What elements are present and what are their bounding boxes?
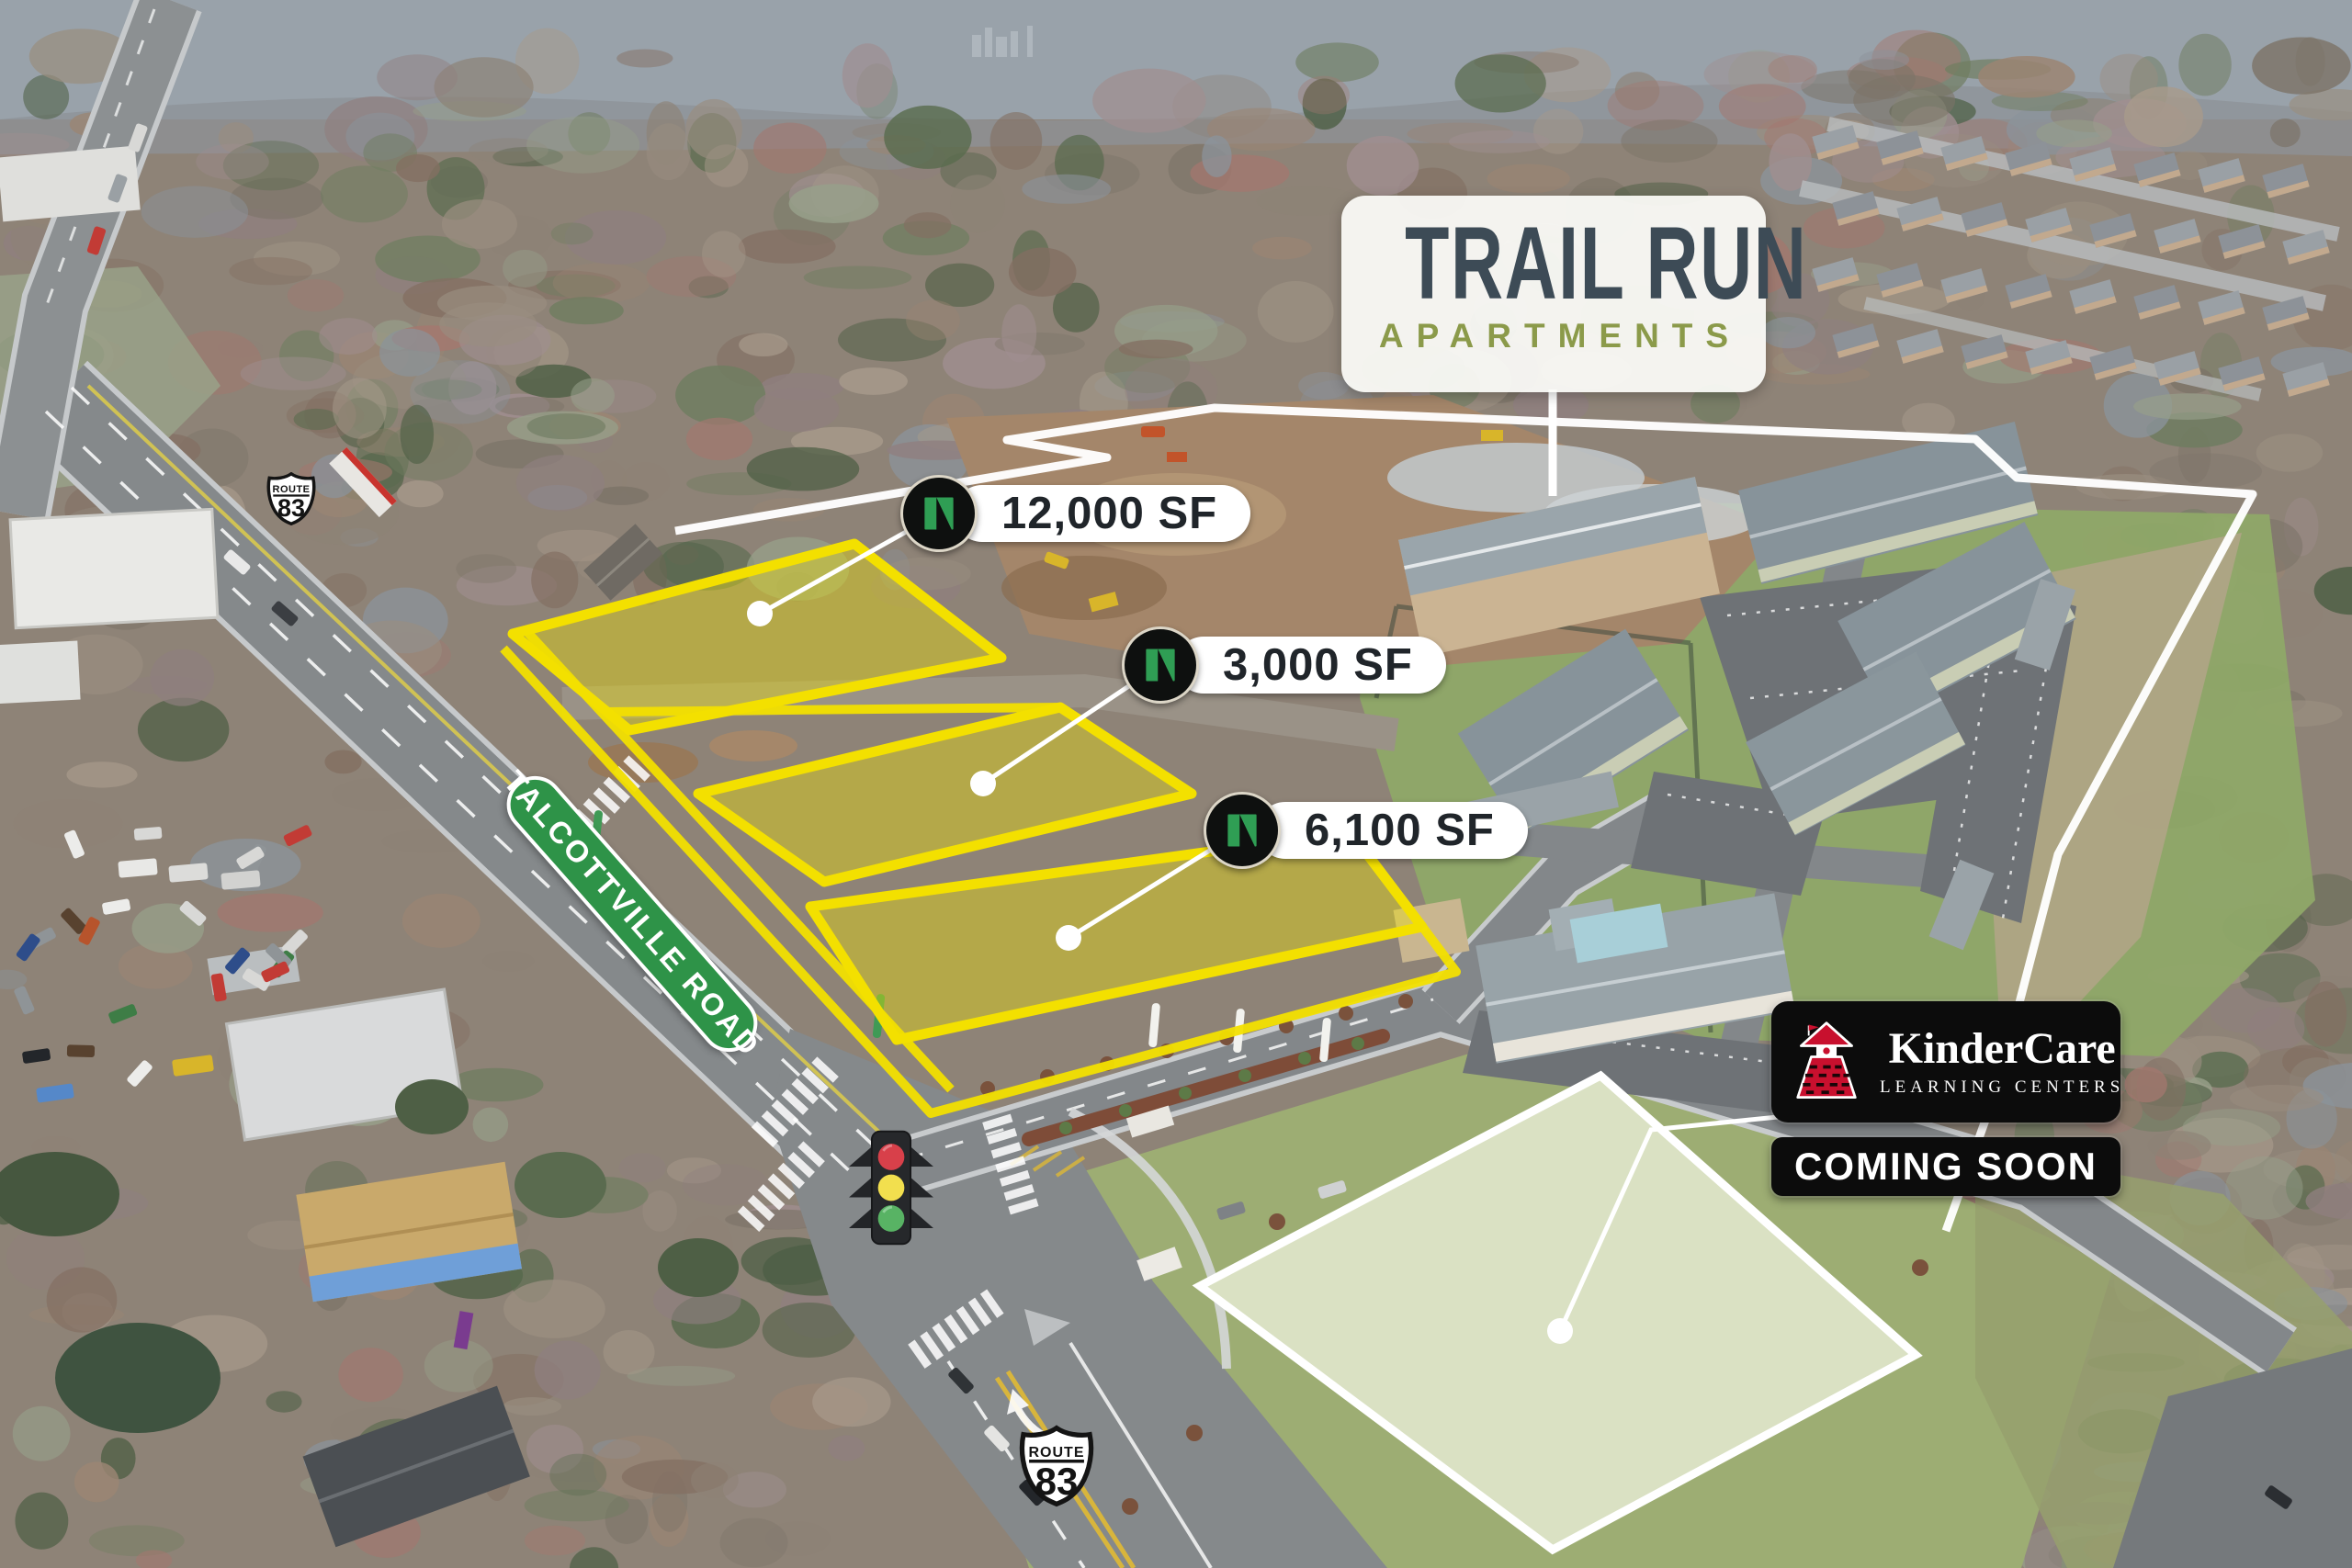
warehouse — [10, 509, 218, 627]
parcel-size-text: 6,100 SF — [1257, 802, 1528, 859]
parcel-size-text: 3,000 SF — [1175, 637, 1446, 694]
coming-soon-badge: COMING SOON — [1771, 1137, 2120, 1196]
parcel-label-6100: 6,100 SF — [1204, 792, 1528, 869]
parcel-label-12000: 12,000 SF — [900, 475, 1250, 552]
kindercare-tagline: LEARNING CENTERS — [1880, 1077, 2124, 1098]
n-logo-icon — [1122, 626, 1199, 704]
kindercare-sign: KinderCare LEARNING CENTERS — [1771, 1001, 2120, 1122]
route-shield-icon: ROUTE 83 — [265, 472, 318, 525]
trail-run-title: TRAIL RUN — [1405, 212, 1807, 315]
aerial-scene — [0, 0, 2352, 1568]
route-number: 83 — [265, 496, 318, 521]
parcel-label-3000: 3,000 SF — [1122, 626, 1446, 704]
n-logo-icon — [1204, 792, 1281, 869]
trail-run-sign: TRAIL RUN APARTMENTS — [1341, 196, 1766, 392]
kindercare-brand: KinderCare — [1889, 1027, 2116, 1071]
route-number: 83 — [1016, 1462, 1097, 1501]
schoolhouse-icon — [1784, 1020, 1869, 1104]
traffic-light-icon — [845, 1126, 937, 1249]
trail-run-subtitle: APARTMENTS — [1341, 317, 1766, 355]
route-shield-icon: ROUTE 83 — [1016, 1424, 1097, 1508]
aerial-site-photo: TRAIL RUN APARTMENTS 12,000 SF 3,000 SF … — [0, 0, 2352, 1568]
parcel-size-text: 12,000 SF — [954, 485, 1250, 542]
route-word: ROUTE — [1016, 1446, 1097, 1461]
n-logo-icon — [900, 475, 978, 552]
